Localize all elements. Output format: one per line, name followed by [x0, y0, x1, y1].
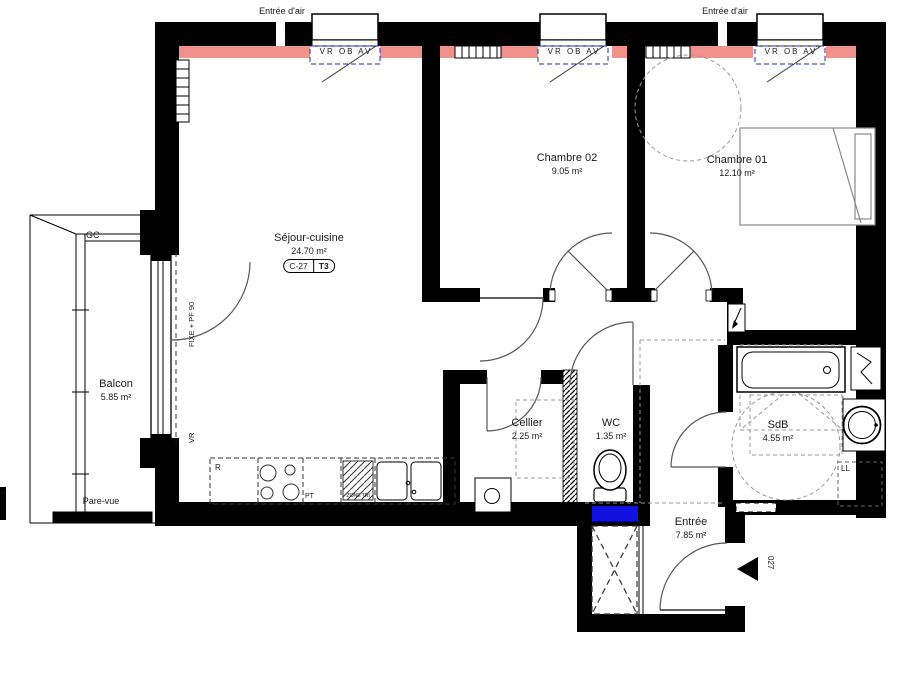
radiator-chambre02 — [455, 46, 501, 58]
door-leaf-chambre01 — [650, 251, 694, 295]
towel-radiator — [851, 347, 881, 390]
door-leaf-chambre02 — [568, 251, 612, 295]
room-label-chambre01: Chambre 01 12.10 m² — [707, 154, 768, 178]
washbasin — [843, 399, 885, 451]
ll-label: LL — [841, 464, 850, 473]
door-arc-sejour — [480, 298, 543, 361]
balcony-structure — [30, 215, 160, 523]
unit-code: C-27 — [284, 260, 312, 272]
fridge-label: R — [215, 463, 221, 472]
vr-label: VR — [187, 433, 196, 443]
room-area: 12.10 m² — [707, 168, 768, 178]
room-area: 9.05 m² — [537, 166, 598, 176]
room-name: Cellier — [511, 417, 542, 429]
room-name: Balcon — [99, 378, 133, 390]
kitchen-counter — [210, 458, 455, 504]
door-arc-entree — [660, 543, 727, 610]
room-area: 1.35 m² — [596, 431, 627, 441]
room-area: 7.85 m² — [675, 530, 707, 540]
unit-type: T3 — [313, 260, 334, 272]
hatched-partition — [563, 370, 577, 505]
room-label-sejour: Séjour-cuisine 24.70 m² C-27 T3 — [274, 232, 344, 274]
kitchen-sink — [377, 462, 441, 500]
shaft-blue-marker — [592, 506, 638, 521]
air-inlet-label-1: Entrée d'air — [259, 6, 305, 16]
cooktop — [260, 465, 299, 500]
pare-vue-screen — [53, 512, 152, 522]
room-area: 5.85 m² — [99, 392, 133, 402]
room-name: Chambre 01 — [707, 154, 768, 166]
edge-text: e — [1, 488, 5, 497]
window-label-2: VR OB AV — [548, 47, 601, 56]
pt-label: PT — [305, 493, 314, 500]
room-label-sdb: SdB 4.55 m² — [763, 419, 794, 443]
room-name: Entrée — [675, 516, 707, 528]
gc-label: GC — [86, 230, 100, 240]
toilet — [594, 450, 626, 502]
sdb-wall-dashed-panel — [736, 503, 776, 512]
unit-tag: C-27 T3 — [283, 259, 334, 273]
room-name: SdB — [763, 419, 794, 431]
room-name: Séjour-cuisine — [274, 232, 344, 244]
walls — [0, 22, 886, 632]
zone-tri-label: ZONE TRI — [346, 493, 369, 499]
room-label-cellier: Cellier 2.25 m² — [511, 417, 542, 441]
room-area: 24.70 m² — [274, 246, 344, 256]
floor-plan-drawing — [0, 0, 910, 680]
heater-strips — [179, 46, 856, 58]
bathtub — [737, 347, 845, 392]
room-name: Chambre 02 — [537, 152, 598, 164]
room-area: 2.25 m² — [511, 431, 542, 441]
door-arc-wc — [570, 322, 633, 385]
room-label-wc: WC 1.35 m² — [596, 417, 627, 441]
window-label-1: VR OB AV — [320, 47, 373, 56]
window-label-3: VR OB AV — [765, 47, 818, 56]
electric-radiator-hall — [728, 304, 745, 332]
turning-circle-sdb — [732, 392, 840, 500]
radiator-chambre01 — [646, 46, 690, 58]
door-arc-sdb — [671, 412, 726, 467]
room-name: WC — [596, 417, 627, 429]
turning-circle-chambre01 — [635, 55, 741, 161]
room-label-chambre02: Chambre 02 9.05 m² — [537, 152, 598, 176]
room-area: 4.55 m² — [763, 433, 794, 443]
door-number-label: 027 — [766, 556, 775, 569]
entrance-arrow-icon — [737, 557, 758, 581]
balcony-door — [151, 252, 176, 442]
room-label-entree: Entrée 7.85 m² — [675, 516, 707, 540]
cellier-fixture — [475, 478, 511, 512]
pare-vue-label: Pare-vue — [83, 496, 120, 506]
air-inlet-label-2: Entrée d'air — [702, 6, 748, 16]
balcony-door-spec-label: FIXE + PF 90 — [187, 302, 196, 347]
door-arc-balcony — [172, 262, 250, 340]
radiator-sejour — [176, 60, 189, 122]
room-label-balcon: Balcon 5.85 m² — [99, 378, 133, 402]
floor-plan: Entrée d'air Entrée d'air VR OB AV VR OB… — [0, 0, 910, 680]
